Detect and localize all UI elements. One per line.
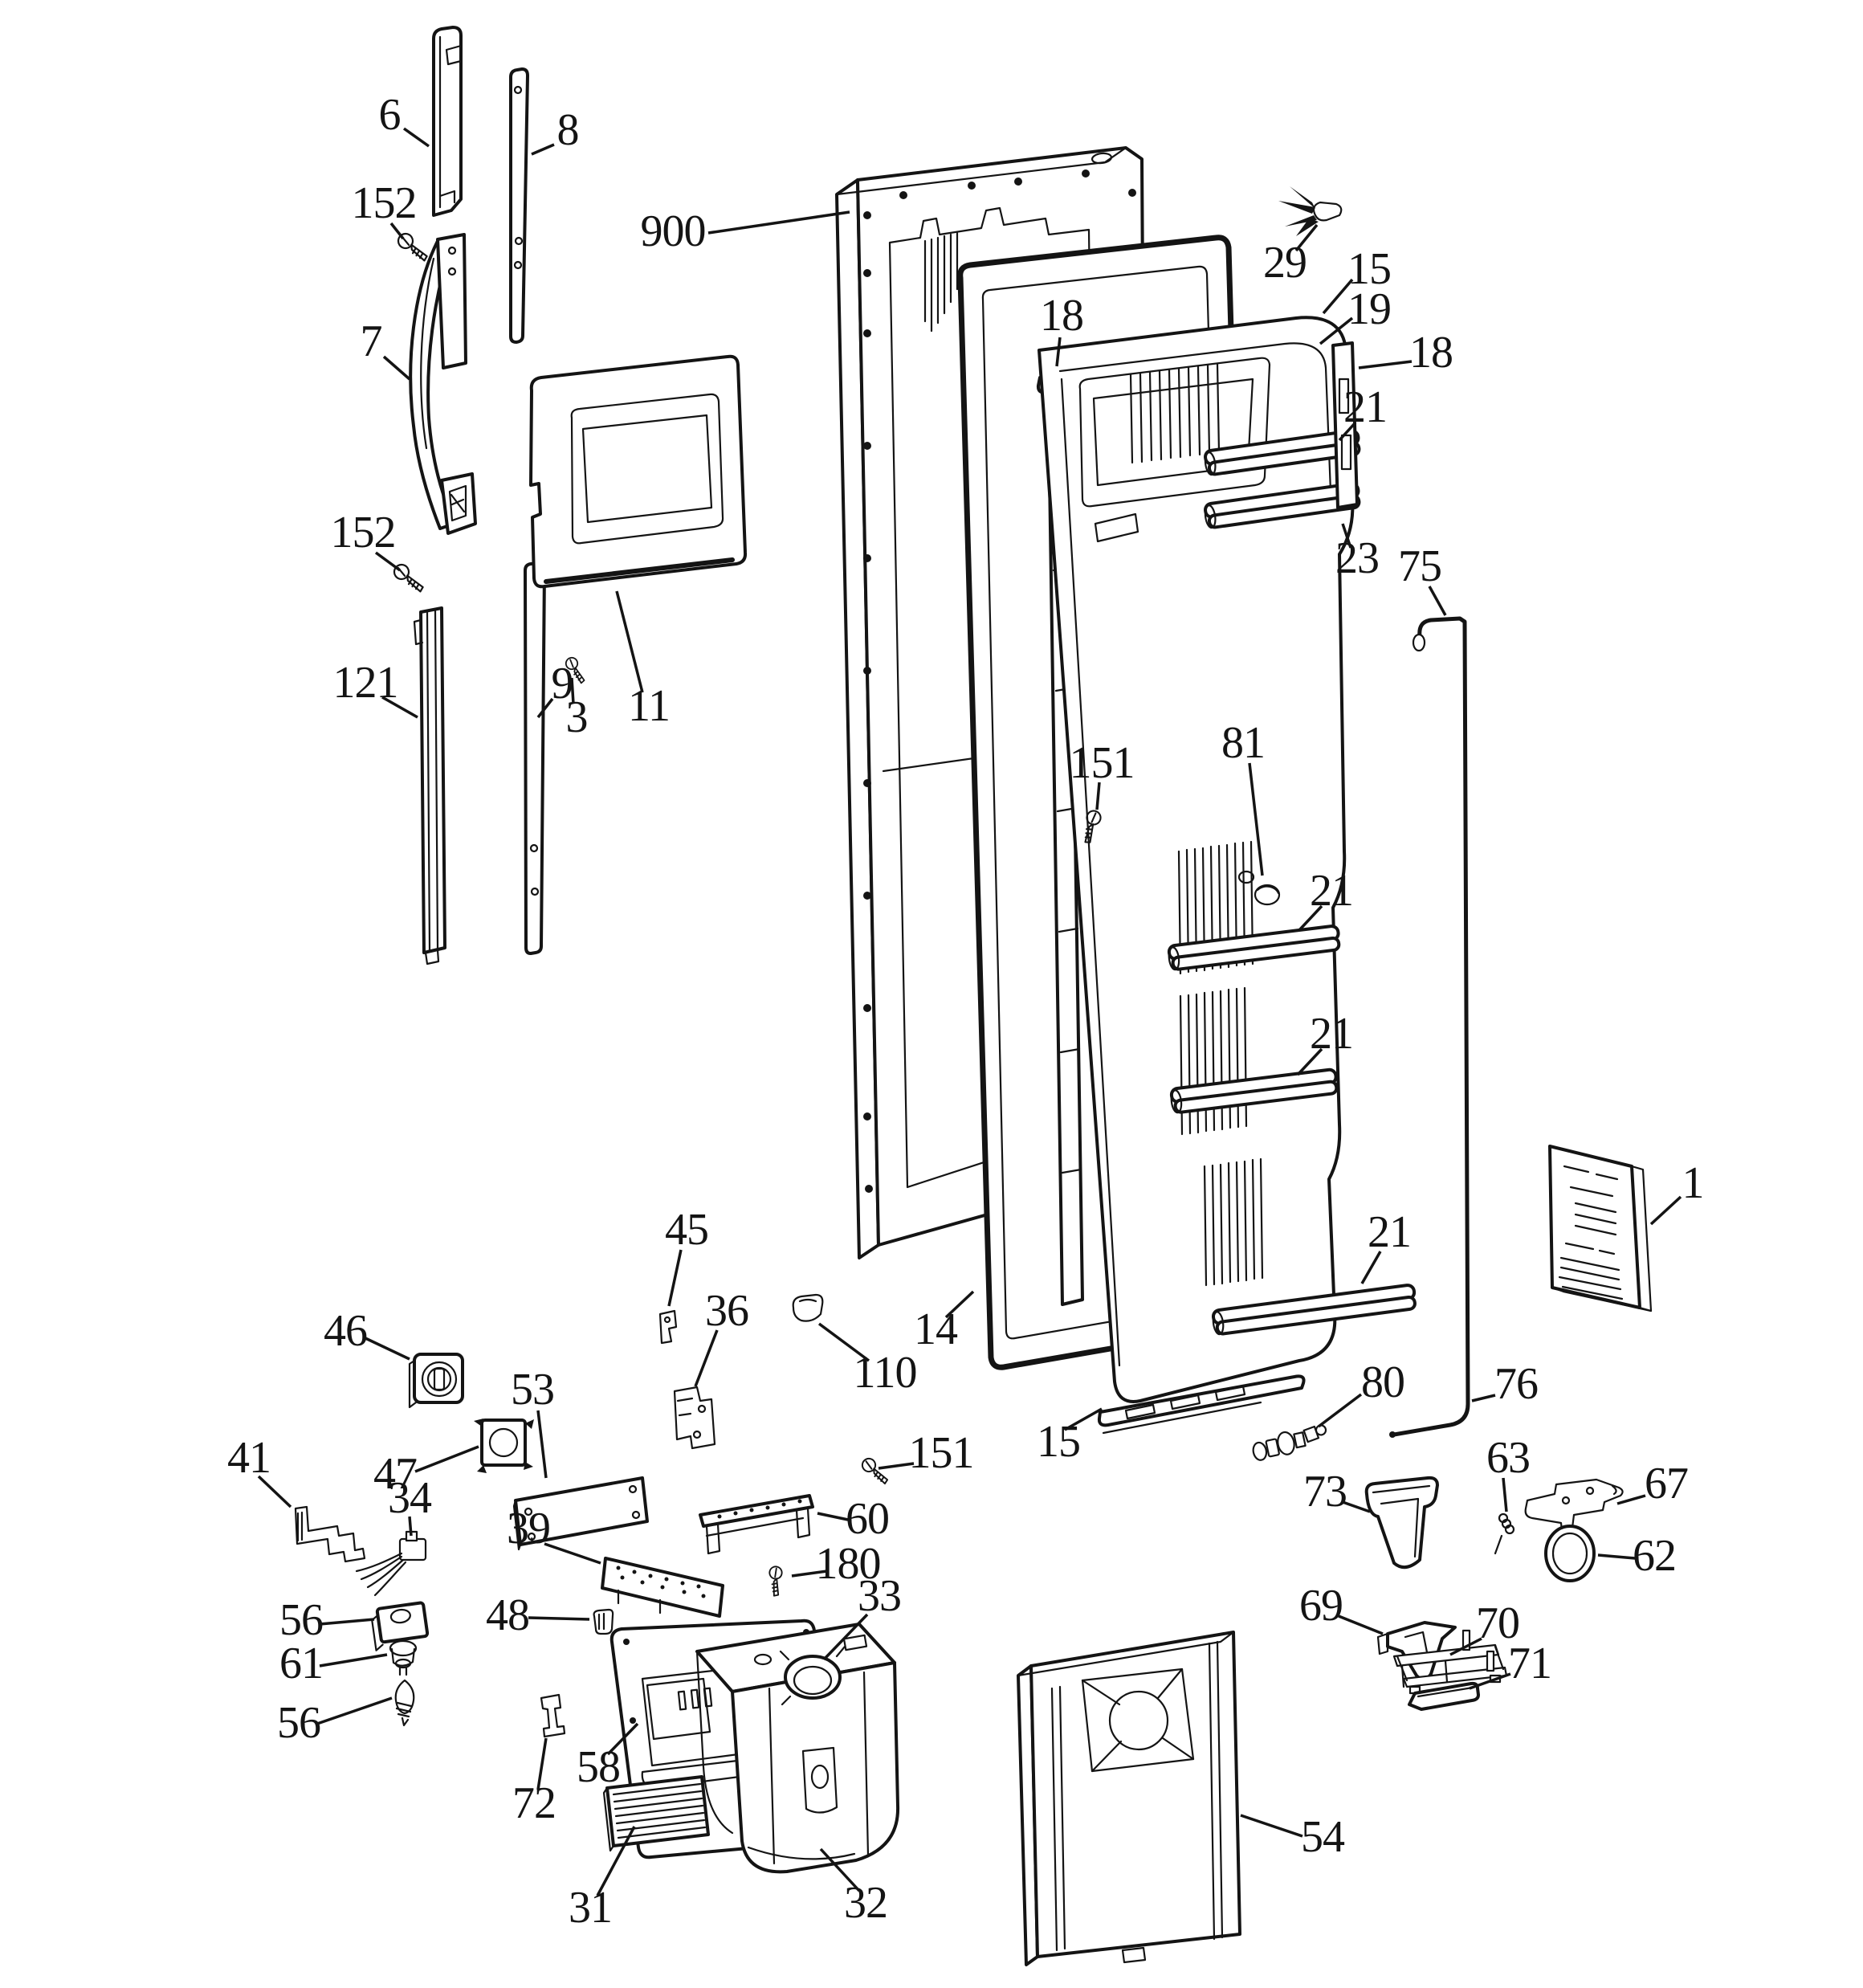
callout-label-900: 900	[641, 206, 706, 256]
part-wire-harness-34	[357, 1532, 426, 1595]
callout-label-72: 72	[512, 1778, 556, 1828]
callout-label-1: 1	[1682, 1158, 1704, 1208]
callout-label-32: 32	[844, 1878, 887, 1928]
part-escutcheon-46	[410, 1354, 463, 1407]
part-retainer-frame-47	[474, 1419, 534, 1473]
callout-label-46: 46	[324, 1306, 367, 1356]
callout-label-63: 63	[1486, 1433, 1530, 1483]
part-bracket-frame-60	[700, 1496, 813, 1553]
callout-label-53: 53	[511, 1365, 554, 1414]
callout-label-151: 151	[1070, 738, 1135, 788]
callout-label-18: 18	[1040, 291, 1083, 341]
freezer-door-exploded-diagram: 6815279001521219113182915191821237515181…	[0, 0, 1863, 1988]
part-clip-29	[1278, 186, 1341, 236]
part-instruction-card-1	[1550, 1146, 1651, 1311]
callout-label-21: 21	[1310, 866, 1353, 916]
callout-label-180: 180	[816, 1539, 881, 1589]
part-hinge-bracket-36	[675, 1387, 715, 1448]
callout-leader-62	[1598, 1555, 1635, 1558]
callout-label-39: 39	[507, 1504, 550, 1553]
part-recess-panel-54	[1018, 1632, 1240, 1965]
callout-label-3: 3	[566, 692, 588, 742]
part-top-trim-6	[434, 27, 461, 215]
callout-label-80: 80	[1361, 1357, 1404, 1407]
callout-label-56: 56	[277, 1698, 320, 1748]
callout-label-58: 58	[577, 1742, 620, 1792]
callout-label-67: 67	[1645, 1459, 1688, 1508]
callout-label-21: 21	[1343, 382, 1387, 432]
callout-label-45: 45	[665, 1205, 708, 1255]
callout-label-54: 54	[1301, 1812, 1345, 1862]
callout-label-69: 69	[1299, 1581, 1343, 1631]
part-spring-63	[1495, 1514, 1514, 1553]
part-light-bulb-56	[396, 1680, 414, 1725]
callout-label-121: 121	[333, 658, 398, 708]
callout-label-23: 23	[1335, 533, 1379, 583]
callout-leader-60	[817, 1513, 848, 1520]
callout-leader-54	[1241, 1815, 1302, 1836]
callout-label-11: 11	[628, 681, 670, 731]
part-seal-ring-62	[1546, 1526, 1594, 1581]
callout-label-73: 73	[1303, 1467, 1347, 1517]
part-ice-chute-73	[1367, 1478, 1437, 1567]
part-bracket-72	[541, 1695, 565, 1737]
part-clip-110	[793, 1295, 823, 1321]
part-control-board-39	[602, 1558, 723, 1616]
callout-leader-46	[365, 1338, 410, 1359]
exploded-parts-diagram-page: 6815279001521219113182915191821237515181…	[0, 0, 1863, 1988]
callout-leader-39	[544, 1544, 601, 1563]
callout-leader-56	[320, 1619, 374, 1624]
callout-leader-36	[695, 1330, 717, 1386]
callout-leader-1	[1651, 1197, 1681, 1224]
callout-label-34: 34	[388, 1473, 432, 1523]
callout-leader-63	[1503, 1478, 1506, 1512]
part-lower-strip-9	[525, 563, 544, 953]
callout-leader-67	[1617, 1496, 1645, 1504]
part-bracket-45	[660, 1311, 676, 1343]
callout-leader-18	[1359, 361, 1412, 368]
part-valve-80	[1250, 1423, 1329, 1461]
callout-leader-80	[1319, 1394, 1361, 1427]
callout-leader-7	[384, 357, 410, 379]
callout-leader-76	[1472, 1395, 1495, 1401]
callout-label-71: 71	[1508, 1639, 1551, 1688]
callout-label-151: 151	[909, 1428, 974, 1478]
callout-label-7: 7	[361, 316, 382, 366]
callout-label-62: 62	[1633, 1531, 1676, 1581]
callout-label-48: 48	[486, 1590, 529, 1640]
screw-180	[761, 1565, 791, 1598]
callout-label-60: 60	[846, 1494, 889, 1544]
part-trim-strip-8	[511, 69, 528, 342]
callout-label-56: 56	[279, 1595, 323, 1645]
callout-leader-73	[1343, 1502, 1370, 1512]
part-bracket-41	[296, 1507, 365, 1561]
callout-label-76: 76	[1494, 1359, 1538, 1409]
callout-leader-45	[669, 1250, 681, 1306]
callout-label-15: 15	[1037, 1417, 1080, 1467]
callout-leader-900	[708, 212, 850, 233]
callout-label-29: 29	[1263, 238, 1307, 288]
callout-leader-48	[528, 1618, 589, 1619]
callout-leader-69	[1339, 1616, 1383, 1634]
part-dairy-door-11	[531, 357, 745, 587]
callout-leader-8	[532, 145, 554, 154]
callout-label-18: 18	[1409, 328, 1453, 378]
callout-label-21: 21	[1368, 1207, 1411, 1257]
callout-leader-47	[415, 1447, 479, 1472]
screw-151-lower	[859, 1457, 891, 1484]
callout-label-81: 81	[1221, 718, 1265, 768]
callout-label-8: 8	[557, 105, 579, 155]
part-door-handle-7	[410, 235, 475, 533]
callout-label-75: 75	[1398, 541, 1441, 591]
part-water-tube-75-76	[1389, 618, 1468, 1438]
callout-label-14: 14	[914, 1304, 958, 1354]
callout-label-21: 21	[1310, 1009, 1353, 1059]
callout-leader-56	[317, 1698, 392, 1724]
part-clip-48	[594, 1610, 614, 1634]
part-lamp-socket-61	[390, 1641, 416, 1675]
callout-leader-11	[617, 591, 642, 692]
callout-label-36: 36	[705, 1286, 748, 1336]
part-lower-trim-121	[414, 608, 445, 964]
callout-label-6: 6	[379, 90, 401, 140]
callout-label-152: 152	[331, 508, 396, 557]
callout-label-19: 19	[1347, 284, 1391, 334]
callout-leader-6	[404, 129, 429, 146]
callout-label-41: 41	[227, 1433, 271, 1483]
callout-leader-53	[538, 1410, 546, 1478]
callout-label-110: 110	[854, 1348, 917, 1398]
callout-leader-61	[320, 1655, 387, 1666]
callout-label-152: 152	[352, 178, 417, 228]
callout-label-31: 31	[569, 1883, 612, 1933]
callout-label-61: 61	[279, 1639, 323, 1688]
